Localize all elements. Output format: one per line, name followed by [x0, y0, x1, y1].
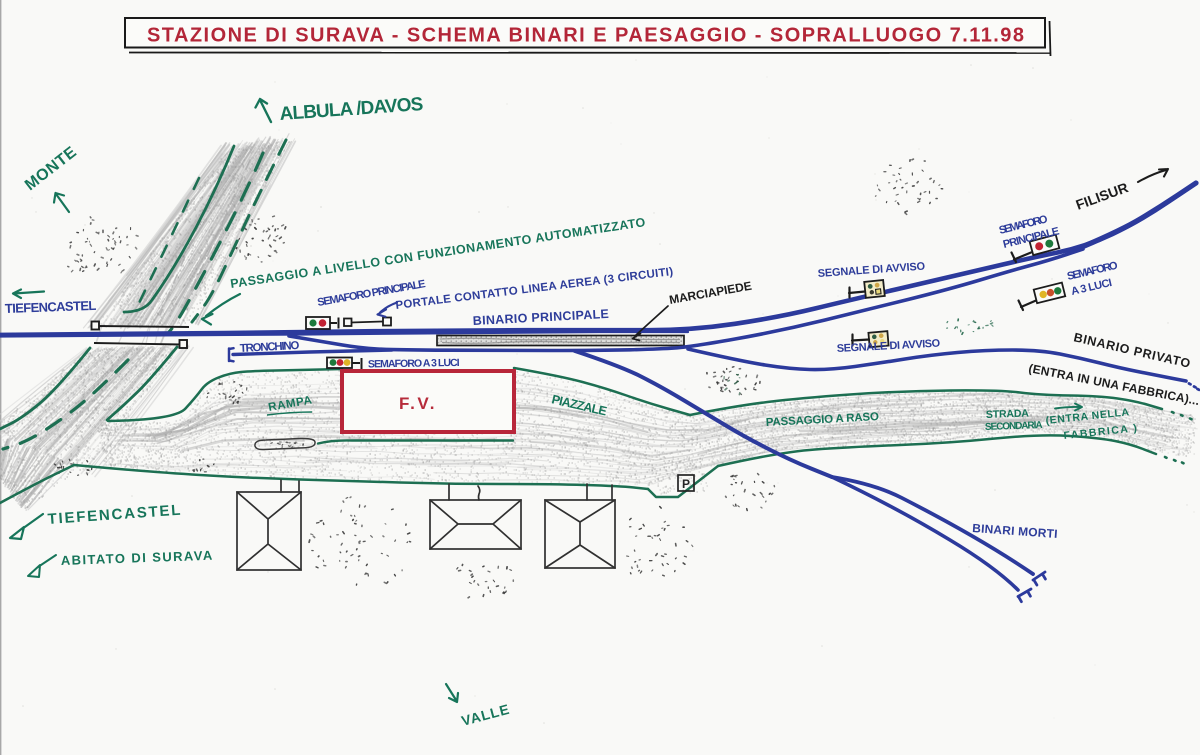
svg-text:TIEFENCASTEL: TIEFENCASTEL: [5, 298, 97, 316]
svg-text:STAZIONE DI SURAVA - SCHEMA: STAZIONE DI SURAVA - SCHEMA BINARI E PAE…: [147, 25, 1025, 47]
svg-text:SECONDARIA: SECONDARIA: [985, 420, 1043, 433]
svg-text:P: P: [682, 477, 690, 491]
svg-text:STRADA: STRADA: [986, 407, 1030, 421]
svg-text:F.V.: F.V.: [399, 394, 437, 413]
svg-text:SEMAFORO A 3 LUCI: SEMAFORO A 3 LUCI: [368, 357, 460, 371]
